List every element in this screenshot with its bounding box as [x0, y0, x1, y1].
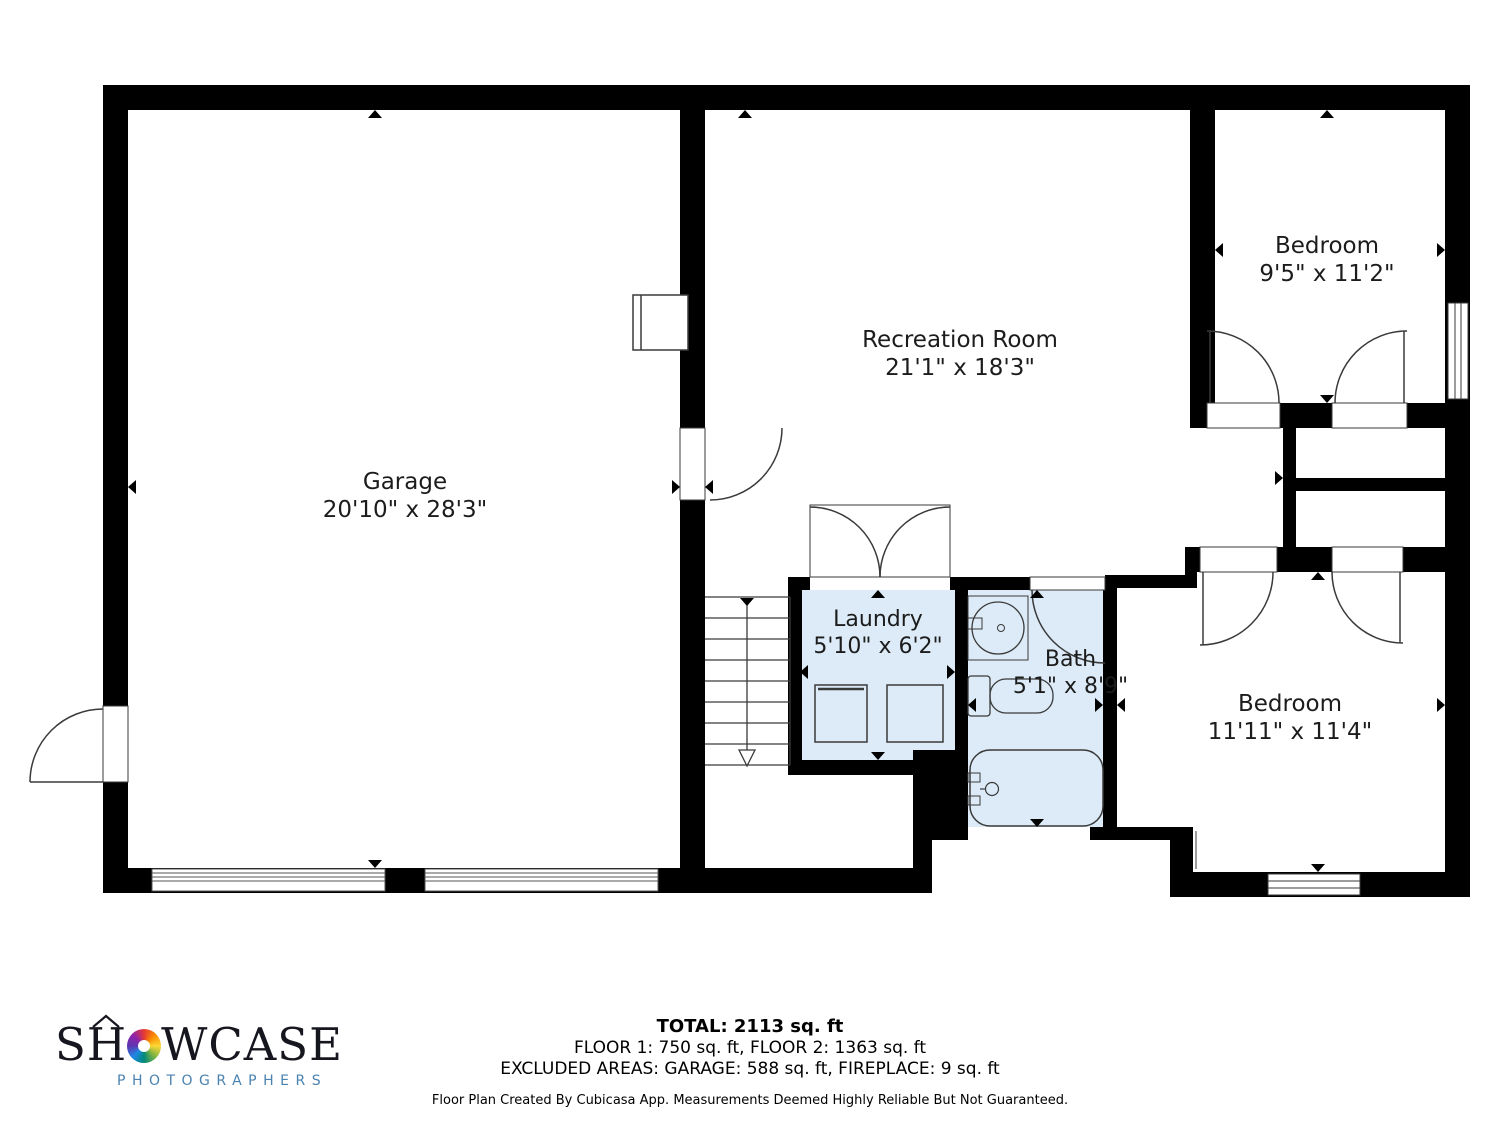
wall: [1190, 403, 1207, 428]
door-arc: [1335, 331, 1407, 403]
door-opening: [103, 706, 128, 782]
camera-aperture-icon: [127, 1029, 161, 1063]
door-opening: [680, 428, 705, 500]
dimension-marker: [368, 110, 382, 118]
floor-plan-drawing: [0, 0, 1500, 1125]
wall: [788, 577, 810, 590]
wall: [1185, 560, 1197, 588]
garage-door: [152, 869, 385, 891]
garage-door: [425, 869, 658, 891]
door-arc: [1200, 572, 1273, 645]
dimension-marker: [368, 860, 382, 868]
door-opening: [1200, 547, 1277, 572]
door-arc: [710, 428, 782, 500]
wall: [1103, 577, 1117, 840]
dimension-marker: [1437, 243, 1445, 257]
wall: [955, 577, 968, 775]
logo-text-right: WCASE: [161, 1018, 343, 1071]
wall: [913, 750, 932, 893]
door-opening: [1332, 403, 1407, 428]
walls: [103, 85, 1470, 897]
aperture-hole: [138, 1040, 150, 1052]
dimension-marker: [1437, 698, 1445, 712]
dimension-markers: [128, 110, 1445, 872]
wall: [1277, 547, 1332, 572]
stair-arrow-end: [739, 750, 755, 766]
door-opening: [1030, 577, 1105, 590]
dimension-marker: [1275, 471, 1283, 485]
wall: [1105, 575, 1190, 588]
dimension-marker: [705, 480, 713, 494]
wall: [1190, 110, 1215, 428]
wall: [680, 500, 705, 893]
stairs: [705, 597, 790, 766]
showcase-logo: SHWCASE PHOTOGRAPHERS: [55, 1020, 315, 1089]
windows: [1268, 303, 1468, 895]
wall: [103, 85, 128, 706]
laundry-floor: [800, 590, 955, 760]
dimension-marker: [128, 480, 136, 494]
wall: [680, 85, 705, 428]
door-opening: [1332, 547, 1403, 572]
stair-arrow-start: [740, 598, 754, 606]
door-openings: [103, 403, 1407, 782]
bath-floor: [968, 590, 1103, 827]
door-opening: [1207, 403, 1280, 428]
dimension-marker: [1320, 110, 1334, 118]
dimension-marker: [1311, 572, 1325, 580]
door-arc: [1332, 572, 1403, 643]
wall: [1407, 403, 1470, 428]
door-arc: [1207, 331, 1279, 403]
dimension-marker: [1311, 864, 1325, 872]
dimension-marker: [1117, 698, 1125, 712]
wall: [103, 85, 1470, 110]
dimension-marker: [1320, 395, 1334, 403]
window: [1448, 303, 1468, 399]
logo-subtitle: PHOTOGRAPHERS: [55, 1073, 315, 1089]
floor-plan-page: Garage 20'10" x 28'3" Recreation Room 21…: [0, 0, 1500, 1125]
logo-wordmark: SHWCASE: [55, 1020, 315, 1070]
dimension-marker: [738, 110, 752, 118]
disclaimer-text: Floor Plan Created By Cubicasa App. Meas…: [0, 1093, 1500, 1109]
wall: [1283, 478, 1470, 491]
dimension-marker: [1215, 243, 1223, 257]
dimension-marker: [672, 480, 680, 494]
door-arc: [30, 709, 103, 782]
wall: [1403, 547, 1470, 572]
window: [1268, 874, 1360, 895]
